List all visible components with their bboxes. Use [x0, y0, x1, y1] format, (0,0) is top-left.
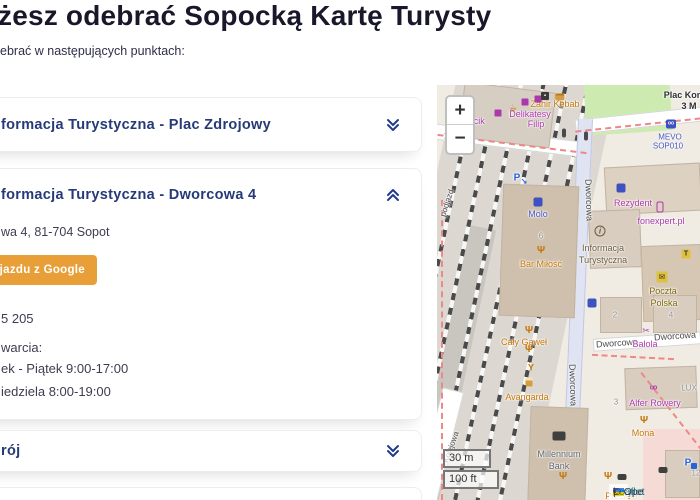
scale-imperial: 100 ft [443, 470, 499, 489]
opening-hours-weekend: iedziela 8:00-19:00 [1, 383, 401, 401]
accordion-card-zdroj: rój [0, 430, 422, 472]
attribution-copyright: © Ope [613, 486, 644, 498]
car-icon [659, 467, 668, 473]
map-label: 2 [613, 311, 617, 320]
google-directions-button[interactable]: dojazdu z Google [0, 255, 97, 285]
hostel-icon [534, 198, 543, 207]
map-label: Alfer Rowery [629, 398, 681, 408]
map-label: Avangarda [505, 392, 548, 402]
accordion-card-dworcowa: formacja Turystyczna - Dworcowa 4 wa 4, … [0, 168, 422, 420]
opening-hours-weekdays: ek - Piątek 9:00-17:00 [1, 360, 401, 378]
map-label: Balola [632, 339, 657, 349]
cocktail-icon: Y [528, 364, 534, 373]
car-icon [618, 474, 627, 480]
map-label: Plac Kon [664, 90, 700, 100]
beer-icon [526, 378, 533, 387]
dashed-route [592, 354, 674, 360]
cafe-icon: ☕ [509, 104, 517, 113]
traffic-light-icon [584, 132, 588, 141]
transit-icon [588, 299, 597, 308]
address-text: wa 4, 81-704 Sopot [1, 225, 401, 239]
map-label: Filip [528, 119, 545, 129]
zoom-in-button[interactable]: + [447, 97, 473, 125]
restaurant-icon: Ψ [537, 246, 545, 256]
page-title: żesz odebrać Sopocką Kartę Turysty [0, 0, 491, 32]
map-label: Turystyczna [579, 255, 627, 265]
bikeshare-icon: oo [666, 120, 676, 129]
parking-dot-icon [691, 463, 697, 469]
map-label: fonexpert.pl [637, 216, 684, 226]
map-label: 3 [614, 398, 618, 407]
restaurant-icon: Ψ [640, 416, 648, 426]
shop-icon [522, 99, 529, 106]
accordion-card-plac-zdrojowy: formacja Turystyczna - Plac Zdrojowy [0, 97, 422, 152]
map-label: Rezydent [614, 198, 652, 208]
opening-hours-label: warcia: [1, 340, 401, 355]
map-label: 3 M [681, 101, 696, 111]
building [600, 297, 642, 333]
chevron-double-up-icon [385, 187, 401, 203]
chevron-double-down-icon [385, 443, 401, 459]
map-label: 4 [669, 311, 673, 320]
atm-icon [553, 432, 566, 441]
map-label: MEVO [658, 133, 682, 142]
shop-icon [495, 110, 502, 117]
map-label: 12 [692, 469, 700, 478]
map-label: Dworcowa [583, 179, 594, 221]
leaflet-map[interactable]: DworcowaDworcowaDworcowaDworcowapodjazdK… [437, 85, 700, 500]
map-label: Millennium [537, 449, 580, 459]
supermarket-icon: ▪ [541, 92, 549, 100]
map-label: Bar Miłość [520, 259, 562, 269]
page: żesz odebrać Sopocką Kartę Turysty ebrać… [0, 0, 700, 500]
restaurant-icon: Ψ [525, 345, 533, 355]
map-label: Dworcowa [567, 364, 578, 406]
bicycle-icon: oo [650, 385, 657, 392]
map-label: Molo [528, 209, 548, 219]
map-zoom-control: + − [445, 95, 475, 155]
accordion-title: formacja Turystyczna - Plac Zdrojowy [1, 117, 271, 133]
map-label: Polska [650, 298, 677, 308]
accordion-card-partial[interactable] [0, 487, 422, 500]
hotel-icon [617, 184, 626, 193]
page-subtitle: ebrać w następujących punktach: [0, 44, 185, 58]
accordion-title: formacja Turystyczna - Dworcowa 4 [1, 187, 256, 203]
restaurant-icon: Ψ [525, 326, 533, 336]
accordion-header-zdroj[interactable]: rój [0, 431, 421, 471]
phone-icon [657, 202, 664, 213]
restaurant-icon: Ψ [604, 472, 612, 482]
map-label: Bank [549, 461, 570, 471]
parking-arrow-icon: ↘ [521, 178, 528, 186]
map-label: Informacja [582, 243, 624, 253]
map-label: P [514, 173, 521, 184]
accordion-header-dworcowa[interactable]: formacja Turystyczna - Dworcowa 4 [0, 169, 421, 221]
accordion-header-plac-zdrojowy[interactable]: formacja Turystyczna - Plac Zdrojowy [0, 98, 421, 151]
accordion-title: rój [1, 443, 20, 459]
map-attribution: Leaflet | © Ope [609, 484, 628, 500]
map-label: 6 [539, 232, 543, 241]
restaurant-icon: Ψ [559, 472, 567, 482]
map-label: SOP010 [653, 142, 683, 151]
phone-number: 5 205 [1, 311, 401, 326]
mailbox-icon: T [682, 250, 691, 259]
map-scale-control: 30 m 100 ft [443, 449, 499, 489]
accordion-body: wa 4, 81-704 Sopot dojazdu z Google 5 20… [0, 225, 421, 419]
scissors-icon: ✂ [642, 327, 650, 336]
envelope-icon: ✉ [657, 272, 668, 283]
fastfood-icon [556, 94, 565, 101]
chevron-double-down-icon [385, 117, 401, 133]
map-label: Mona [632, 428, 655, 438]
info-icon: i [595, 226, 606, 237]
traffic-light-icon [562, 129, 566, 138]
zoom-out-button[interactable]: − [447, 125, 473, 153]
map-label: LUX [681, 384, 697, 393]
scale-metric: 30 m [443, 449, 491, 468]
map-label: Poczta [649, 286, 677, 296]
